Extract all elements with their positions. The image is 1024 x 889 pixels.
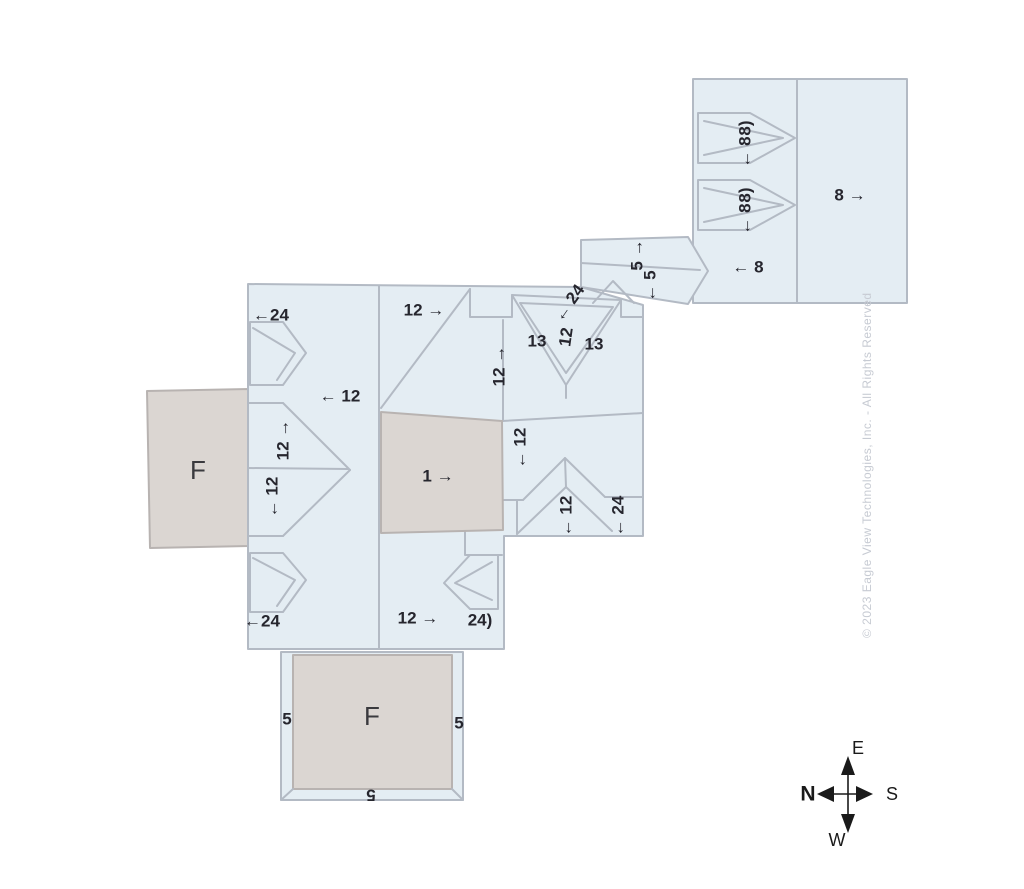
pitch-label: 8) — [736, 187, 755, 202]
pitch-label: 5 — [366, 786, 375, 805]
pitch-label: ← 12 — [263, 477, 282, 518]
pitch-label: 8) — [736, 120, 755, 135]
compass-label-west: W — [829, 830, 846, 850]
pitch-label: 1 → — [422, 467, 453, 486]
pitch-label: ← 8 — [736, 203, 755, 234]
pitch-label: ← 24 — [609, 495, 628, 536]
pitch-label: 5 — [282, 710, 291, 729]
pitch-label: ← 12 — [557, 496, 576, 537]
compass-rose: E S W N — [800, 738, 898, 850]
pitch-label: 5 → — [628, 239, 647, 270]
compass-arrow-left — [817, 786, 834, 802]
roof-diagram-canvas: ←24← 1212 →← 12←2412 →12 →← 241213131 →←… — [0, 0, 1024, 889]
compass-label-north: N — [800, 783, 815, 806]
compass-arrow-up — [841, 756, 855, 775]
pitch-label: ←24 — [253, 306, 289, 325]
pitch-label: ← 5 — [641, 270, 660, 301]
pitch-label: 24) — [468, 611, 493, 630]
pitch-label: 13 — [585, 335, 604, 354]
compass-label-south: S — [886, 784, 898, 804]
pitch-label: ←24 — [244, 612, 280, 631]
pitch-label: ← 12 — [320, 387, 361, 406]
pitch-label: 5 — [454, 714, 463, 733]
pitch-label: ← 12 — [511, 428, 530, 469]
pitch-label: 13 — [528, 332, 547, 351]
pitch-label: ← 8 — [736, 136, 755, 167]
pitch-label: 12 → — [398, 609, 439, 628]
pitch-label: ← 8 — [732, 258, 763, 277]
copyright-watermark: © 2023 Eagle View Technologies, Inc. - A… — [860, 292, 874, 638]
flat-roof-label: F — [190, 455, 206, 485]
roof-diagram-page: ←24← 1212 →← 12←2412 →12 →← 241213131 →←… — [0, 0, 1024, 889]
compass-label-east: E — [852, 738, 864, 758]
pitch-label: 12 → — [404, 301, 445, 320]
compass-arrow-right — [856, 786, 873, 802]
pitch-label: 12 → — [490, 346, 509, 387]
flat-roof-label: F — [364, 701, 380, 731]
pitch-label: 12 — [555, 326, 576, 347]
pitch-label: 8 → — [834, 186, 865, 205]
pitch-label: 12 → — [274, 420, 293, 461]
